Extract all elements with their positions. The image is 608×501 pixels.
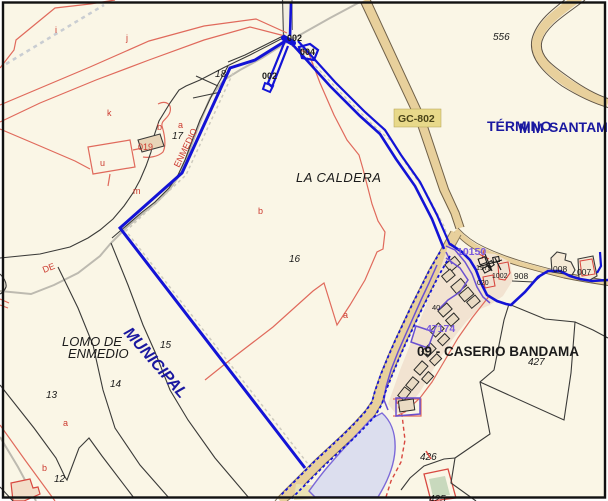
svg-text:13: 13 [46,390,58,401]
svg-text:019: 019 [138,142,153,152]
svg-text:M: M [532,120,544,136]
svg-text:004: 004 [300,47,315,57]
svg-text:1979: 1979 [476,265,492,272]
svg-text:i: i [55,25,57,35]
svg-text:k: k [107,108,112,118]
svg-text:GC-802: GC-802 [398,113,435,125]
svg-text:15: 15 [160,340,172,351]
svg-text:002: 002 [262,71,277,81]
svg-text:a: a [178,120,183,130]
svg-text:007: 007 [577,267,591,277]
svg-text:LA CALDERA: LA CALDERA [296,170,381,185]
svg-text:16: 16 [289,254,301,265]
svg-text:12: 12 [54,474,66,485]
svg-text:426: 426 [420,452,437,463]
svg-text:a: a [63,418,68,428]
svg-text:17: 17 [172,131,184,142]
svg-text:b: b [258,206,263,216]
svg-text:m: m [133,186,141,196]
svg-text:556: 556 [493,32,510,43]
svg-text:40: 40 [432,303,440,312]
svg-text:18: 18 [215,69,227,80]
svg-text:ENMEDIO: ENMEDIO [68,346,129,361]
svg-text:a: a [343,310,348,320]
svg-text:10150: 10150 [457,246,486,258]
svg-text:b: b [157,122,162,132]
svg-text:14: 14 [110,379,122,390]
svg-text:1002: 1002 [492,273,508,280]
svg-text:908: 908 [514,271,528,281]
svg-text:008: 008 [553,264,567,274]
svg-text:j: j [125,33,128,43]
svg-text:47174: 47174 [426,323,455,335]
svg-text:020: 020 [477,280,489,287]
svg-text:SANTAM: SANTAM [549,119,608,135]
svg-text:09 - CASERIO BANDAMA: 09 - CASERIO BANDAMA [417,344,579,359]
svg-text:M: M [519,120,531,136]
svg-text:002: 002 [287,33,302,43]
svg-text:u: u [100,158,105,168]
svg-text:b: b [42,463,47,473]
